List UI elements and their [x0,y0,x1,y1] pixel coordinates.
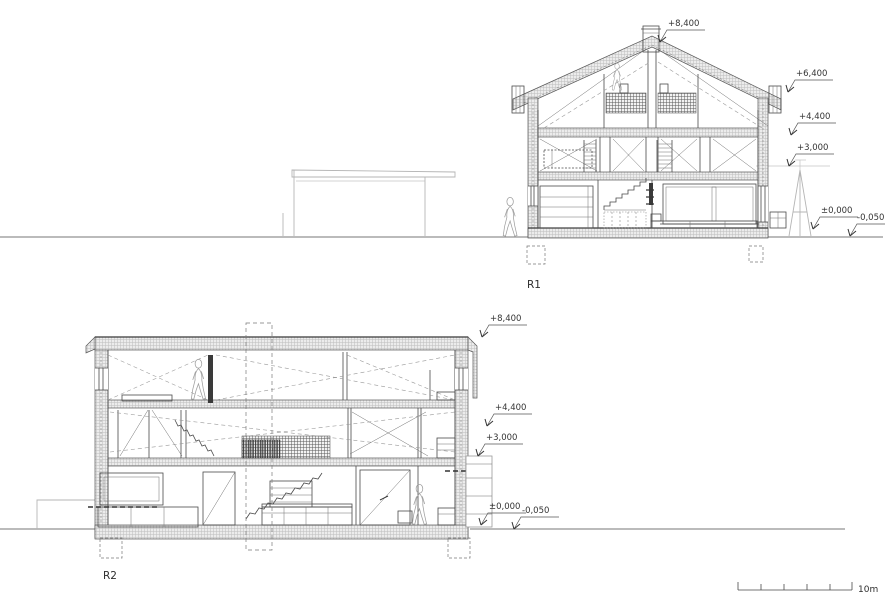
shelving [540,186,593,228]
drawing-canvas: +8,400 +6,400 +4,400 +3,000 ±0,000 -0,05… [0,0,887,600]
sofa [651,214,757,228]
brace [350,412,428,456]
level-marker-r1-ground: -0,050 [848,213,885,236]
level-marker-r1-upper: +4,400 [789,112,836,135]
level-label: -0,050 [522,506,549,516]
base-cabinets [98,507,198,527]
foundation [448,538,470,558]
bed [544,150,592,168]
slat-screen-dark [242,440,280,458]
level-marker-r1-eave: +6,400 [786,69,833,92]
level-label: +8,400 [490,314,521,324]
counter-right [438,508,455,525]
level-label: -0,050 [857,213,884,223]
mesh-panel [606,93,646,113]
wall-left [95,337,108,538]
house-r1 [512,26,781,264]
mid-floor-interior [110,408,455,458]
roof-slab [95,337,468,350]
scale-bar: 10m [738,582,878,595]
mezzanine-level [540,137,756,172]
door-swing [120,410,182,456]
window [660,184,759,224]
roof-fin-left [86,337,95,353]
foundation [749,246,763,262]
external-ladder [466,456,492,527]
house-r2 [86,323,492,558]
architectural-sheet: +8,400 +6,400 +4,400 +3,000 ±0,000 -0,05… [0,0,887,600]
level-label: +3,000 [797,143,828,153]
level-marker-r1-mid: +3,000 [787,143,834,166]
level-marker-r2-parapet: +8,400 [480,314,527,337]
section-r2-drawing: +8,400 +4,400 +3,000 ±0,000 -0,050 R2 [0,314,845,582]
foundation [527,246,545,264]
scale-label: 10m [858,585,878,595]
level-marker-r2-upper: +4,400 [485,403,532,426]
partition-wall [208,355,213,403]
level-label: +4,400 [799,112,830,122]
wall-window-left [528,186,538,206]
gable-roof [512,36,781,113]
level-label: +6,400 [796,69,827,79]
upper-floor-slab [538,172,758,180]
attic-floor-slab [538,128,758,137]
mesh-panel [658,93,696,113]
outdoor-cabinet [770,212,786,228]
wall-window-right [455,368,468,390]
level-label: ±0,000 [821,206,852,216]
level-marker-r1-zero: ±0,000 [811,206,858,229]
mid-floor-slab [108,458,455,466]
attic-interior [538,49,768,128]
wall-window-left [95,368,108,390]
section-r1-drawing: +8,400 +6,400 +4,400 +3,000 ±0,000 -0,05… [0,19,885,291]
section-label-r2: R2 [103,570,117,582]
person-figure [412,484,426,524]
ground-slab [528,228,768,238]
door [360,470,410,525]
level-label: +3,000 [486,433,517,443]
staircase [604,178,646,228]
level-marker-r2-mid: +3,000 [476,433,523,456]
wall-window-right [758,186,768,222]
level-label: +8,400 [668,19,699,29]
level-label: +4,400 [495,403,526,413]
level-marker-r1-ridge: +8,400 [658,19,705,42]
section-label-r1: R1 [527,279,541,291]
ground-floor-interior [88,466,478,527]
door [203,472,235,525]
person-figure [503,197,517,236]
shelf-right [437,438,455,458]
stair-upper [657,140,672,172]
picture-frame [100,473,163,505]
foundation [100,538,122,558]
sofa [262,504,352,525]
carport [283,170,455,236]
roof-fin-right [468,337,477,398]
upper-floor-interior [108,352,455,403]
level-label: ±0,000 [489,502,520,512]
